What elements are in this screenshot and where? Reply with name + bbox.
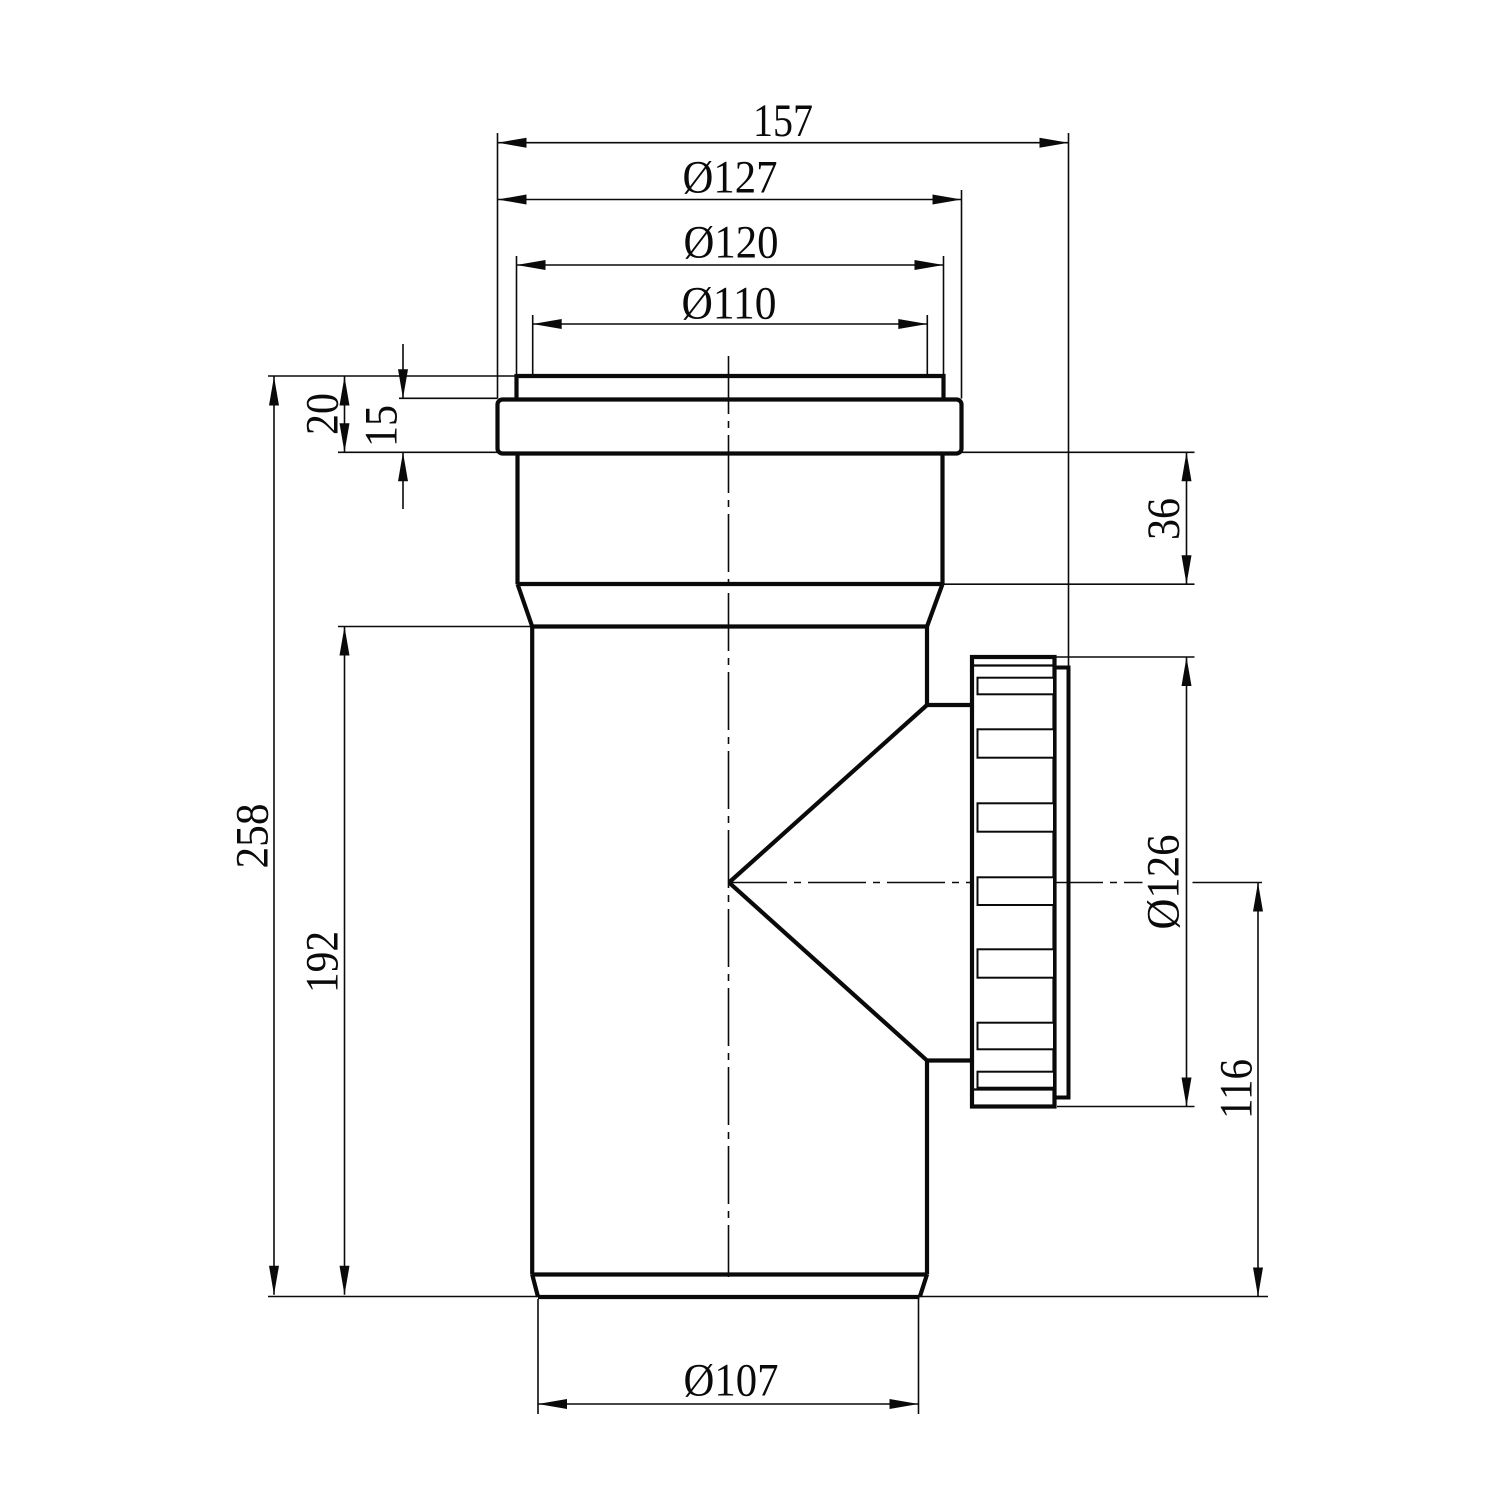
svg-text:15: 15 [355,405,407,447]
svg-text:Ø110: Ø110 [682,277,777,329]
svg-text:20: 20 [296,393,348,435]
svg-text:Ø127: Ø127 [683,151,778,203]
svg-text:Ø120: Ø120 [684,216,779,268]
svg-text:157: 157 [753,95,813,147]
svg-text:116: 116 [1210,1059,1262,1119]
svg-text:258: 258 [226,804,278,869]
svg-text:192: 192 [296,931,348,993]
svg-text:Ø107: Ø107 [684,1354,779,1406]
svg-text:Ø126: Ø126 [1137,835,1189,930]
svg-text:36: 36 [1138,498,1190,540]
